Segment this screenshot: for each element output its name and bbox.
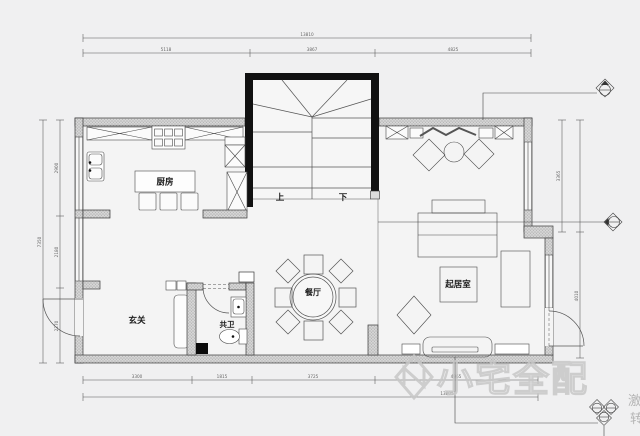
dim-top-seg3: 4825: [448, 47, 459, 52]
dim-top: 13810 5118 3867 4825: [83, 32, 531, 57]
elevation-marker-cluster: [590, 400, 619, 436]
toilet: [220, 329, 248, 344]
wall-niche-right: [495, 344, 529, 354]
entry-door: [43, 298, 83, 336]
watermark-brand-text: 小宅全配: [437, 358, 589, 400]
hall-cabinet-b: [177, 281, 186, 290]
window-right-upper: [524, 142, 532, 210]
foyer-label: 玄关: [128, 315, 146, 326]
dim-top-seg2: 3867: [307, 47, 318, 52]
tall-cabinets: [225, 137, 247, 212]
side-text-line1: 激: [628, 394, 640, 409]
living-label: 起居室: [444, 279, 471, 290]
shaft-block: [196, 343, 208, 354]
elevation-marker-top: [596, 79, 614, 97]
kitchen-label: 厨房: [156, 177, 173, 188]
wall-niche-left: [402, 344, 420, 354]
stair-wall-cap: [371, 191, 380, 199]
living-room-door: [545, 308, 584, 346]
kitchen-sink: [87, 152, 104, 181]
dim-right-lower: 4010: [574, 290, 579, 301]
duct-box: [239, 272, 254, 282]
staircase: 上 下: [245, 73, 380, 207]
dim-left-seg1: 2900: [54, 162, 59, 173]
elevation-marker-right: [604, 213, 622, 231]
dim-left: 7350 2900 2180 2270: [37, 120, 64, 363]
dim-bottom-seg3: 3725: [308, 374, 319, 379]
side-gray-text: 激 转: [628, 394, 640, 427]
window-left-lower: [75, 218, 83, 281]
cooktop: [152, 126, 185, 149]
dim-bottom-seg1: 3300: [132, 374, 143, 379]
dim-top-overall: 13810: [300, 32, 314, 37]
stair-down-label: 下: [339, 193, 348, 203]
window-right-lower: [545, 255, 553, 308]
dim-right: 3365 4010: [556, 120, 584, 358]
dim-left-overall: 7350: [37, 236, 42, 247]
hall-cabinet-a: [166, 281, 176, 290]
wash-basin: [231, 297, 246, 317]
floor-plan-canvas: 上 下: [0, 0, 640, 436]
dim-left-seg2: 2180: [54, 246, 59, 257]
stair-up-label: 上: [276, 192, 285, 203]
bathroom-label: 共卫: [220, 319, 235, 329]
dim-left-seg3: 2270: [54, 320, 59, 331]
side-text-line2: 转: [630, 412, 640, 427]
dining-label: 餐厅: [304, 287, 321, 297]
dim-right-upper: 3365: [556, 170, 561, 181]
window-left-upper: [75, 137, 83, 210]
dim-bottom-seg2: 1815: [217, 374, 228, 379]
floor-plan-drawing: 上 下: [0, 0, 640, 436]
dim-top-seg1: 5118: [161, 47, 172, 52]
